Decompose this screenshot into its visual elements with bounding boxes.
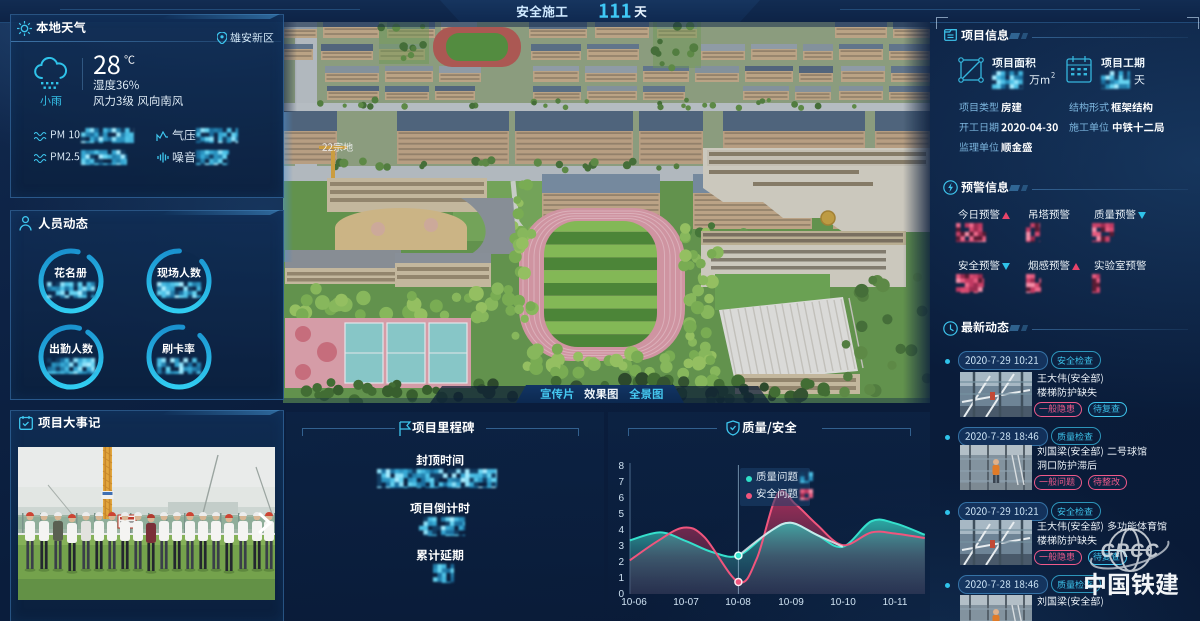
svg-text:5: 5 [618,509,624,520]
svg-text:6: 6 [618,493,624,504]
svg-text:1: 1 [618,573,624,584]
svg-text:10-06: 10-06 [621,597,647,607]
svg-text:8: 8 [618,461,624,472]
svg-text:2: 2 [618,557,624,568]
svg-text:10-07: 10-07 [673,597,699,607]
svg-text:3: 3 [618,541,624,552]
svg-text:CRCC: CRCC [1101,541,1160,562]
svg-text:10-08: 10-08 [725,597,751,607]
svg-text:10-10: 10-10 [830,597,856,607]
svg-text:7: 7 [618,477,624,488]
svg-text:10-11: 10-11 [883,597,908,607]
svg-text:4: 4 [618,525,624,536]
svg-text:10-09: 10-09 [778,597,804,607]
